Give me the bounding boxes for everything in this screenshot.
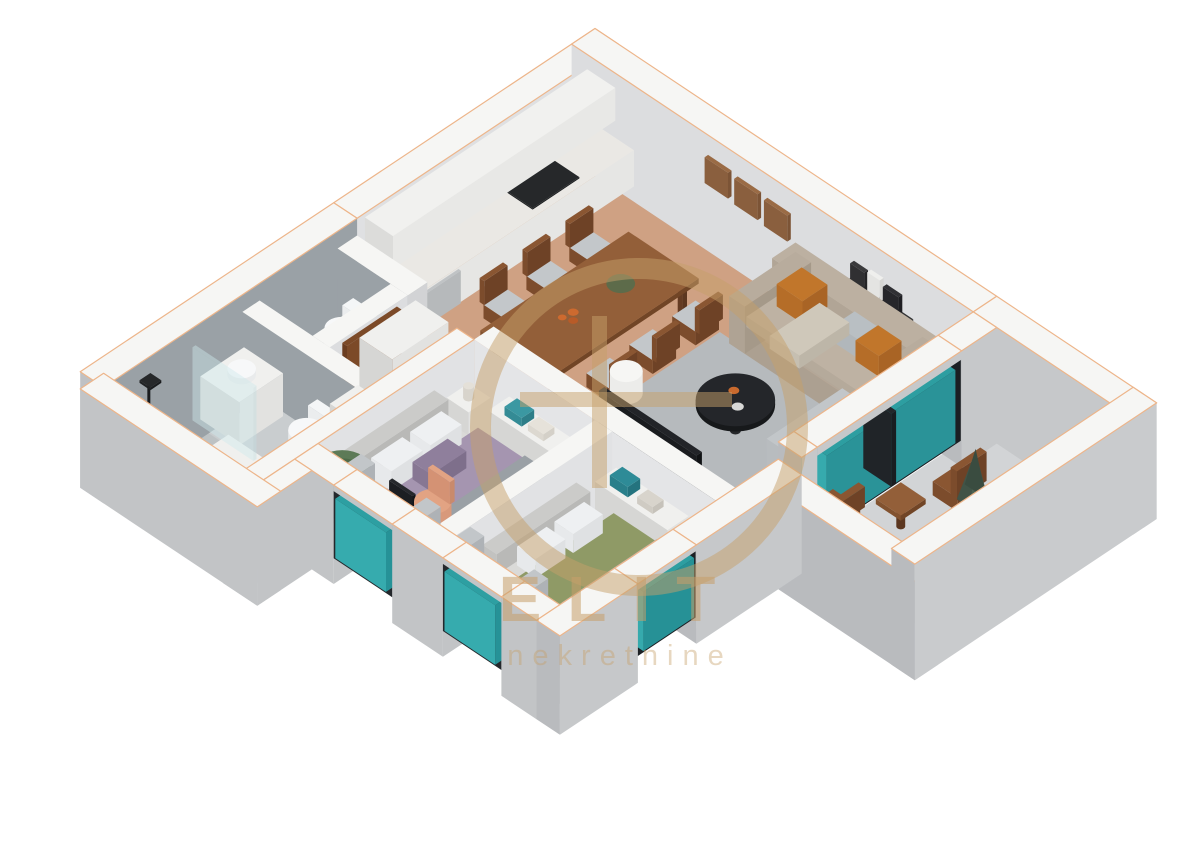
sliding-door-mullion <box>891 411 896 487</box>
balcony-table-leg <box>896 524 905 530</box>
table-decor <box>732 403 744 411</box>
bedside-lamp <box>463 382 474 389</box>
fruit <box>568 309 579 316</box>
wall-front-bath <box>257 491 280 606</box>
wall-balcony-door-jamb <box>962 328 997 468</box>
coffee-table <box>696 373 775 426</box>
dining-chair-back <box>652 336 657 363</box>
bedside-lamp <box>463 394 474 401</box>
wall-art-panel <box>728 171 732 199</box>
desk-chair-back <box>450 479 455 505</box>
fruit <box>558 314 567 320</box>
dining-chair-back <box>695 307 700 334</box>
wall-art-panel <box>787 213 791 241</box>
table-decor <box>728 387 739 394</box>
dining-chair-back <box>565 221 570 248</box>
shower-glass-screen <box>253 386 256 461</box>
wall-art-panel <box>758 192 762 220</box>
dining-chair-back <box>523 249 528 276</box>
balcony-armchair-back <box>951 467 957 500</box>
isometric-scene <box>0 0 1200 854</box>
floor-lamp-shade <box>610 360 643 382</box>
fruit <box>568 317 578 324</box>
dining-chair-back <box>480 278 485 305</box>
wall-right-balcony <box>891 549 914 681</box>
floorplan-render: ELIT nekretnine <box>0 0 1200 854</box>
wall-right-bedroom2 <box>537 620 560 735</box>
table-centerpiece <box>606 274 635 293</box>
